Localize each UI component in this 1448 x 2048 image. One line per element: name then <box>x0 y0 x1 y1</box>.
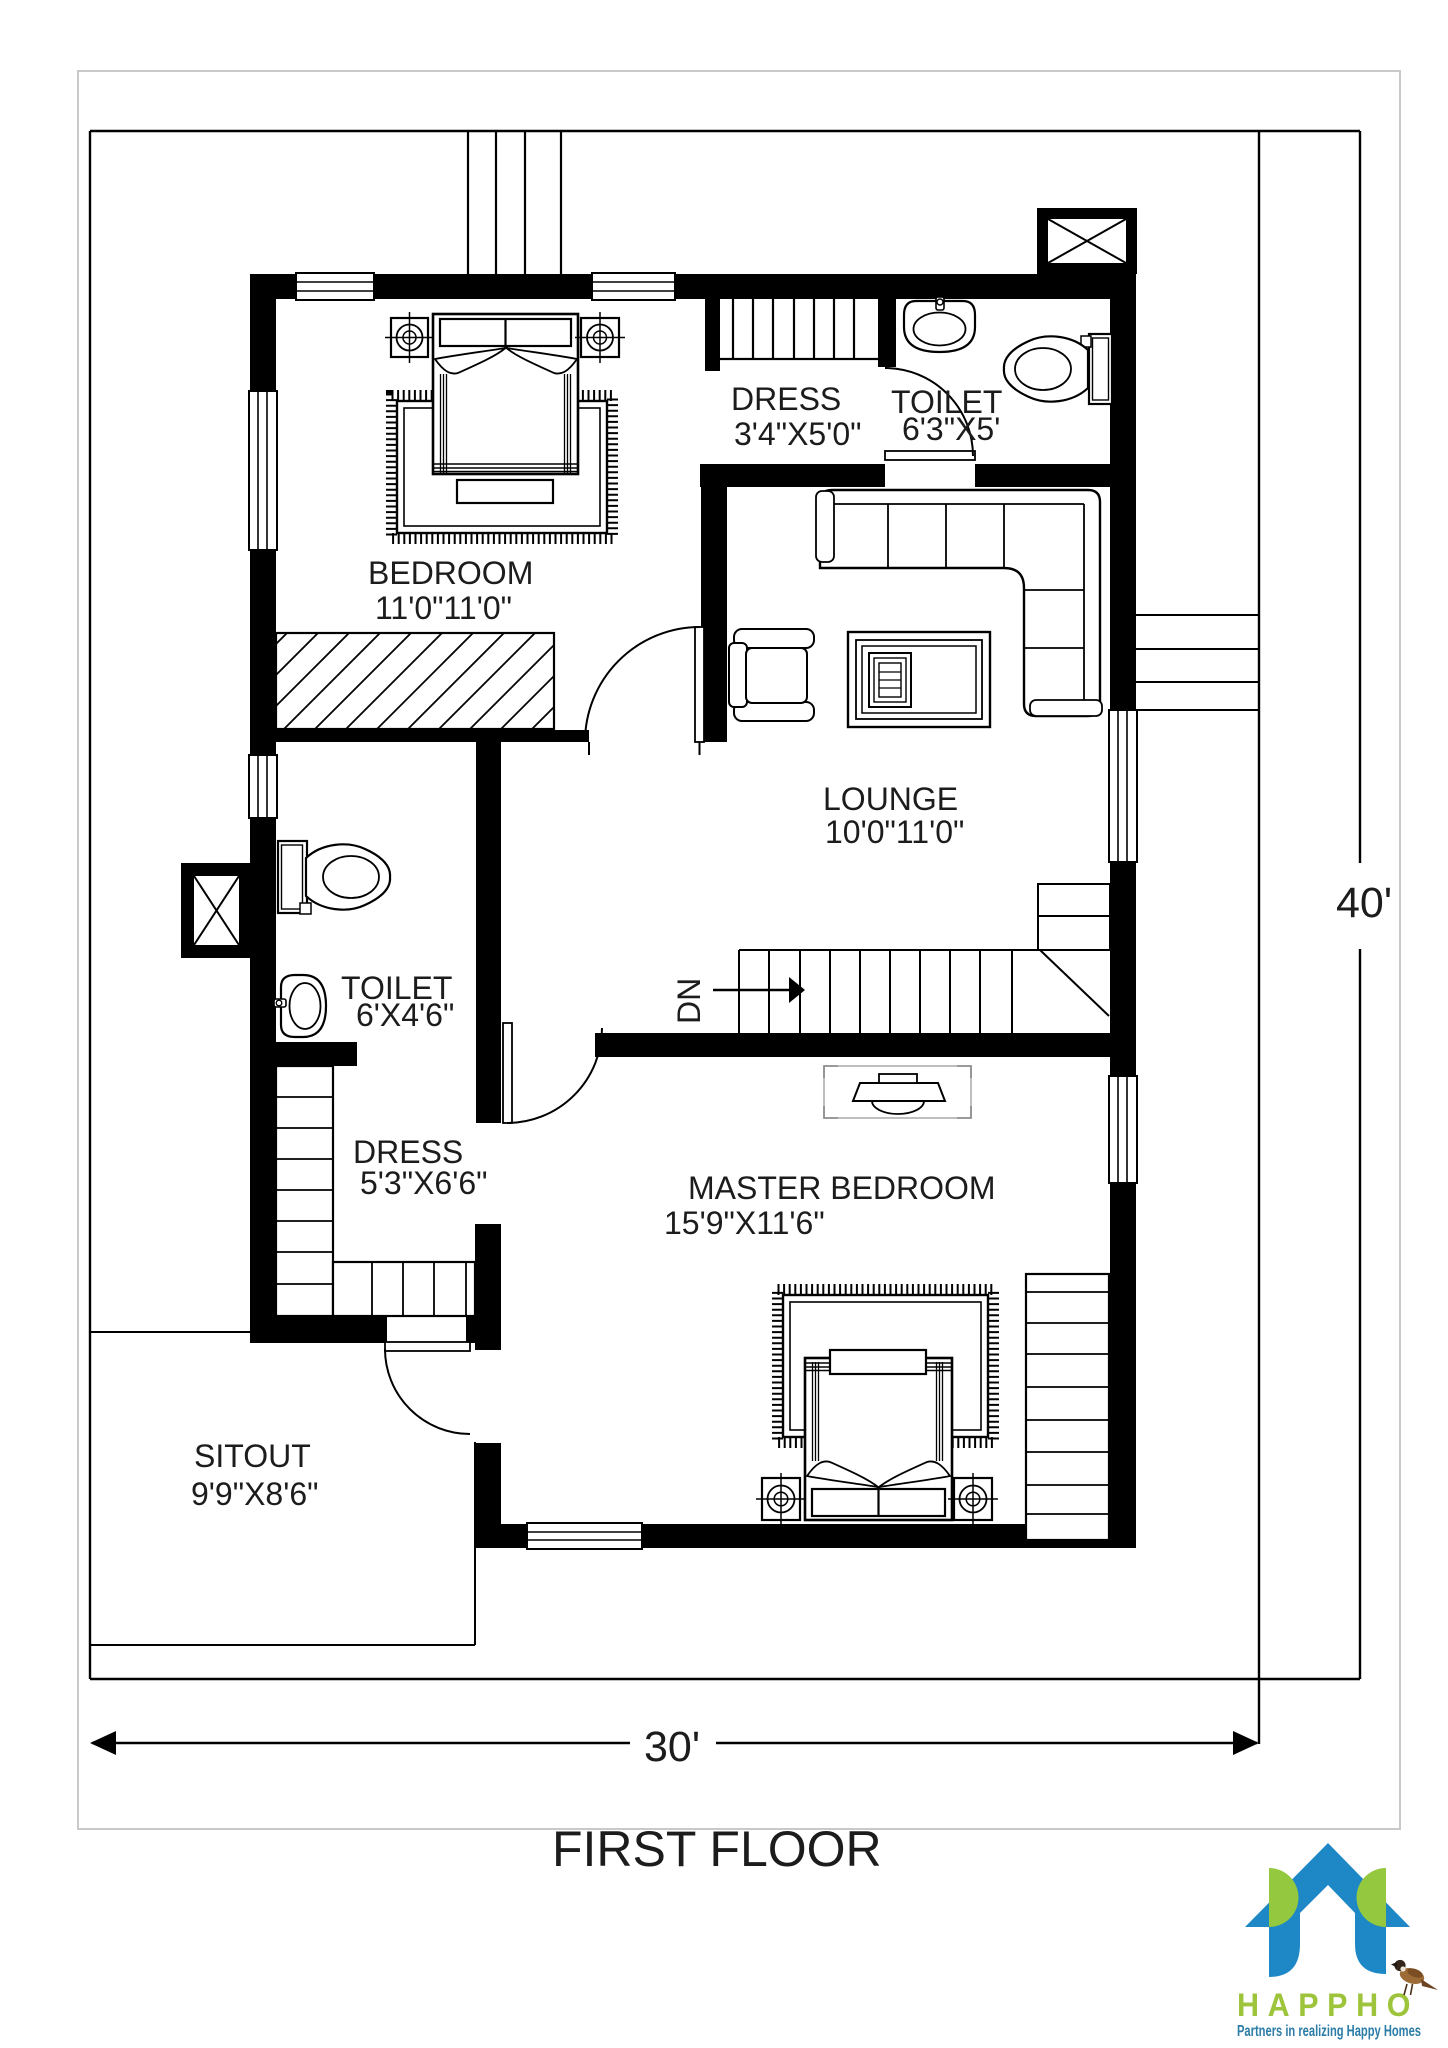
svg-text:BEDROOM: BEDROOM <box>368 555 533 591</box>
svg-text:3'4"X5'0": 3'4"X5'0" <box>734 416 861 452</box>
svg-text:10'0"11'0": 10'0"11'0" <box>825 814 964 850</box>
svg-text:MASTER BEDROOM: MASTER BEDROOM <box>688 1170 996 1206</box>
svg-text:SITOUT: SITOUT <box>194 1438 311 1474</box>
svg-text:DN: DN <box>671 978 707 1024</box>
svg-text:30': 30' <box>644 1723 700 1771</box>
svg-text:15'9"X11'6": 15'9"X11'6" <box>664 1205 825 1241</box>
svg-text:9'9"X8'6": 9'9"X8'6" <box>191 1476 318 1512</box>
svg-text:HAPPHO: HAPPHO <box>1237 1987 1419 2023</box>
svg-text:Partners in realizing Happy Ho: Partners in realizing Happy Homes <box>1237 2023 1421 2040</box>
svg-text:6'3"X5': 6'3"X5' <box>902 411 1000 447</box>
svg-text:40': 40' <box>1336 879 1392 927</box>
svg-text:11'0"11'0": 11'0"11'0" <box>375 590 512 626</box>
svg-text:5'3"X6'6": 5'3"X6'6" <box>360 1165 487 1201</box>
svg-text:6'X4'6": 6'X4'6" <box>356 997 454 1033</box>
svg-text:FIRST FLOOR: FIRST FLOOR <box>552 1821 882 1877</box>
svg-text:DRESS: DRESS <box>731 381 841 417</box>
svg-text:LOUNGE: LOUNGE <box>823 781 958 817</box>
